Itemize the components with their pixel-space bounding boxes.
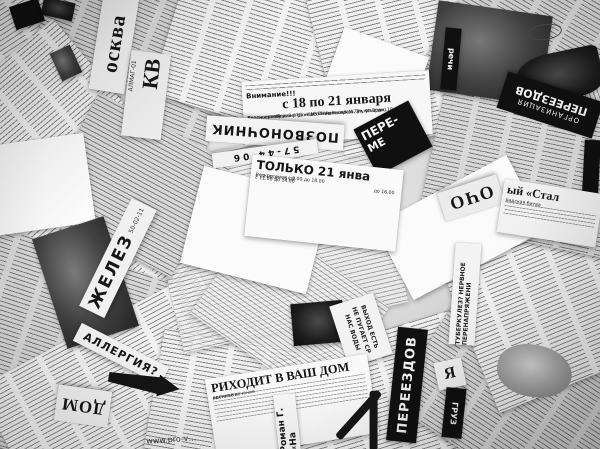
dom-text: ДОМ: [60, 393, 106, 419]
blank-paper: [0, 133, 96, 237]
newspaper-collage-photo: осква КВ АЛМАГ-01 речи Внимание!!! с 18 …: [0, 0, 600, 449]
tuberkulez-text: ТУБЕРКУЛЕЗ? НЕРВНОЕ ПЕРЕНАПРЯЖЕНИ: [454, 243, 475, 346]
ya-chip: Я: [433, 357, 466, 390]
kv-headline-text: КВ: [137, 57, 167, 91]
zhelez-phone: 50-02-11: [127, 207, 145, 235]
gruz-text: ГРУЗ: [448, 401, 459, 425]
rechi-text: речи: [446, 48, 457, 71]
site-url-text: www.pro-v…: [146, 433, 197, 445]
tolko-advert: ТОЛЬКО 21 янва Воскресенье с 9.00 до 18.…: [244, 154, 404, 251]
pereezdov-text: ПЕРЕЕЗДОВ: [394, 336, 419, 435]
ya-text: Я: [442, 364, 457, 384]
masthead-moskva-text: осква: [97, 12, 131, 74]
pozvonochnik-text: ПОЗВОНОЧНИК: [211, 121, 340, 145]
scissors-blade: [370, 391, 378, 449]
dom-headline: ДОМ: [54, 384, 112, 427]
